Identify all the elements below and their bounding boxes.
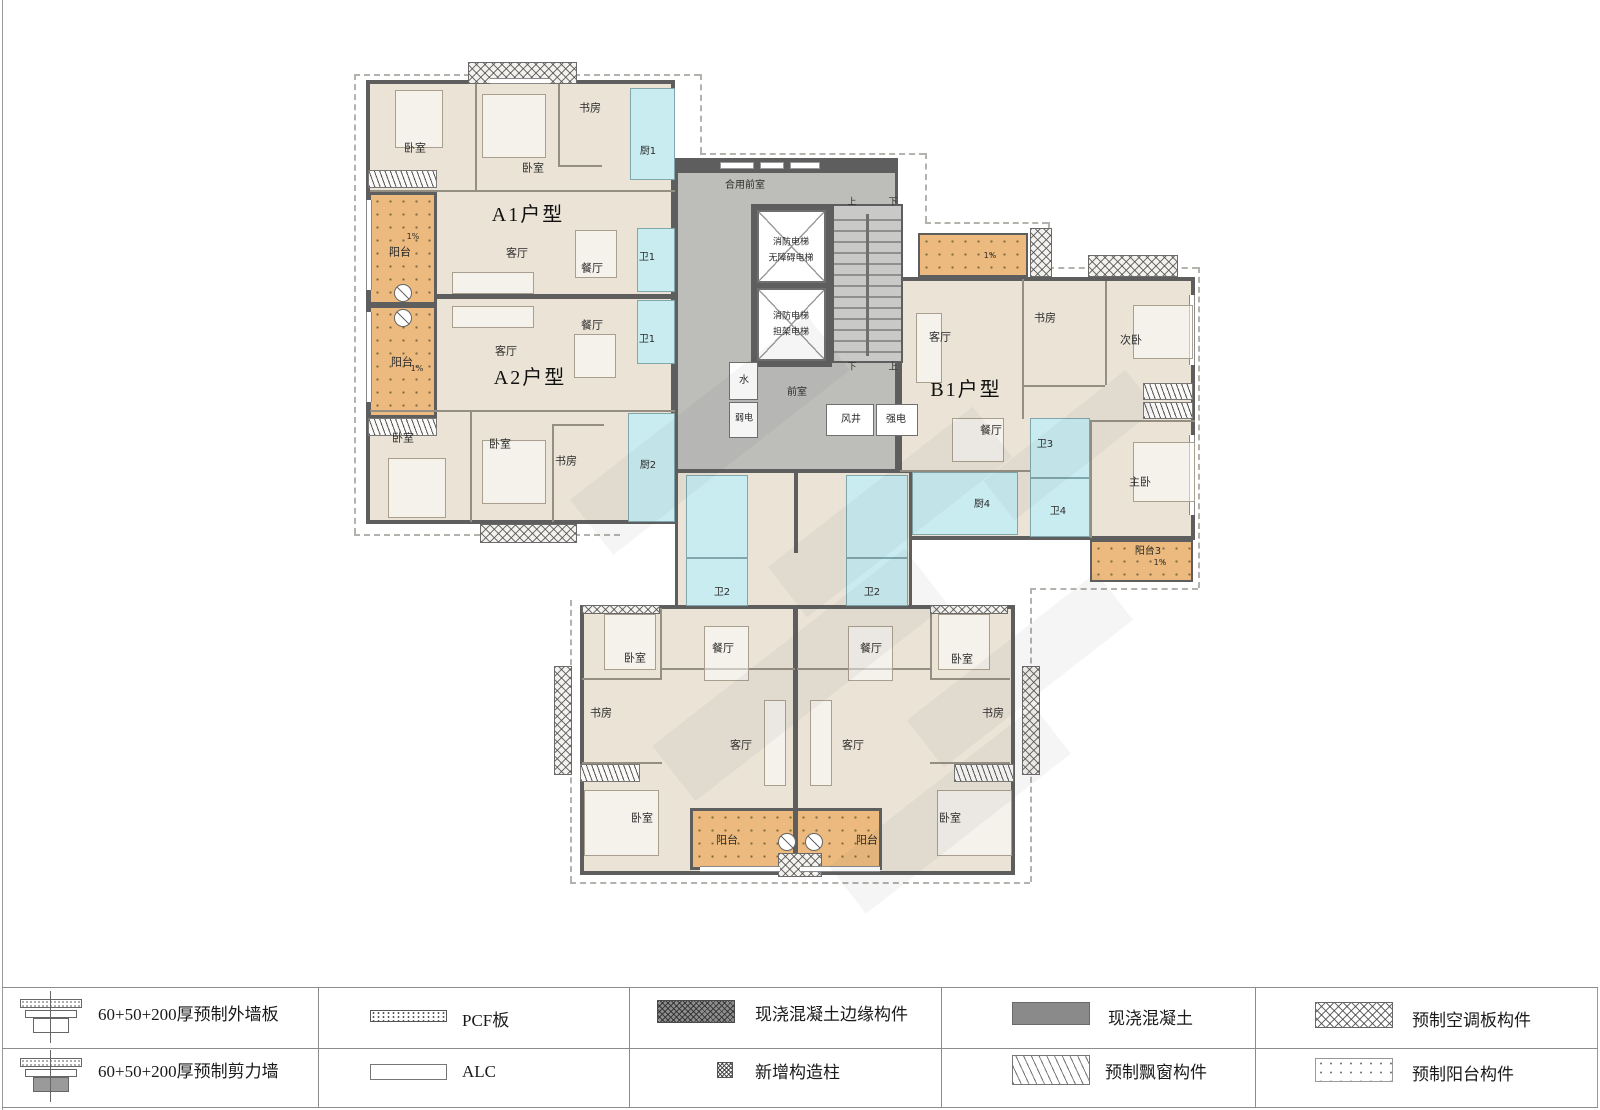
kitchen-1 <box>630 88 675 180</box>
room-label: 卧室 <box>489 439 511 450</box>
ac-panel-hatch <box>778 853 822 877</box>
room-label: 卧室 <box>939 813 961 824</box>
room-label: 阳台 <box>856 835 878 846</box>
room-label: 强电 <box>886 415 906 425</box>
dashed-boundary <box>925 153 927 222</box>
interior-wall <box>1024 385 1105 387</box>
legend-label: 新增构造柱 <box>755 1058 840 1083</box>
room-label: 担架电梯 <box>773 329 809 338</box>
room-label: 卧室 <box>392 433 414 444</box>
interior-wall <box>470 412 472 522</box>
room-label: 主卧 <box>1129 477 1151 488</box>
ac-panel-hatch <box>582 605 660 614</box>
room-label: 消防电梯 <box>773 313 809 322</box>
wall-vent <box>790 162 820 169</box>
room-label: 客厅 <box>730 740 752 751</box>
room-label: 1% <box>984 252 997 260</box>
sofa <box>916 313 942 383</box>
room-label: 客厅 <box>842 740 864 751</box>
room-label: 卫1 <box>639 253 655 263</box>
dashed-boundary <box>354 74 356 534</box>
legend-grid-line <box>1255 987 1256 1107</box>
bed <box>395 90 443 148</box>
legend-grid-line <box>629 987 630 1107</box>
legend-label: 现浇混凝土边缘构件 <box>755 1000 908 1025</box>
legend-grid-line <box>2 1107 1598 1108</box>
room-label: 卫2 <box>864 588 880 598</box>
room-label: 合用前室 <box>725 181 765 191</box>
room-label: 下 <box>847 364 856 373</box>
balcony-b1-top <box>918 233 1028 277</box>
room-label: 书房 <box>555 456 577 467</box>
bath-1-a2 <box>637 300 675 364</box>
legend-symbol-exterior-wall <box>20 991 82 1043</box>
legend-symbol-new-column <box>717 1062 733 1078</box>
room-label: 上 <box>847 199 856 208</box>
dashed-boundary <box>925 222 1048 224</box>
room-label: 客厅 <box>929 332 951 343</box>
legend-symbol-bay-window <box>1012 1055 1090 1085</box>
legend-label: ALC <box>462 1062 496 1082</box>
dashed-boundary <box>700 153 925 155</box>
ac-panel-hatch <box>1030 228 1052 277</box>
sofa <box>810 700 832 786</box>
dashed-boundary <box>700 74 702 153</box>
room-label: 卫2 <box>714 588 730 598</box>
room-label: 水 <box>739 376 749 386</box>
room-label: 阳台 <box>389 247 411 258</box>
room-label: 1% <box>411 365 424 373</box>
floorplan-canvas: A1户型A2户型B1户型卧室卧室书房厨1客厅餐厅卫1阳台餐厅卫1客厅阳台卧室卧室… <box>0 0 1600 1110</box>
interior-wall <box>552 424 604 426</box>
room-label: 厨1 <box>640 147 656 157</box>
ac-panel-hatch <box>480 524 577 543</box>
legend-symbol-cast-concrete <box>1012 1002 1090 1025</box>
room-label: 1% <box>1154 559 1167 567</box>
legend-grid-line <box>2 1048 1598 1049</box>
ac-panel-hatch <box>554 666 572 775</box>
window <box>366 312 372 402</box>
room-label: 餐厅 <box>712 643 734 654</box>
window <box>490 78 550 84</box>
room-label: 阳台 <box>716 835 738 846</box>
interior-wall <box>370 410 675 412</box>
interior-wall <box>1022 279 1024 419</box>
room-label: 厨4 <box>974 500 990 510</box>
room-label: 客厅 <box>495 346 517 357</box>
room-label: 餐厅 <box>980 425 1002 436</box>
legend-symbol-pcf <box>370 1010 447 1022</box>
unit-title: A1户型 <box>492 205 564 225</box>
bath-2-left <box>686 558 748 606</box>
legend-label: PCF板 <box>462 1006 509 1031</box>
sofa <box>452 272 534 294</box>
room-label: 无障碍电梯 <box>768 255 813 264</box>
legend-label: 现浇混凝土 <box>1108 1004 1193 1029</box>
legend-symbol-balcony-member <box>1315 1058 1393 1082</box>
washing-machine-icon <box>778 833 796 851</box>
room-label: 卫4 <box>1050 507 1066 517</box>
unit-title: B1户型 <box>930 380 1001 400</box>
interior-wall <box>475 84 477 190</box>
legend-symbol-cast-edge <box>657 1000 735 1023</box>
room-label: 1% <box>407 233 420 241</box>
legend-label: 预制空调板构件 <box>1412 1006 1531 1031</box>
room-label: 卫3 <box>1037 440 1053 450</box>
room-label: 卫1 <box>639 335 655 345</box>
bay-window-hatch <box>580 764 640 782</box>
interior-wall <box>1105 281 1107 385</box>
room-label: 卧室 <box>624 653 646 664</box>
interior-wall <box>558 165 602 167</box>
legend-label: 预制飘窗构件 <box>1105 1058 1207 1083</box>
ac-panel-hatch <box>1088 255 1178 277</box>
room-label: 前室 <box>787 388 807 398</box>
room-label: 阳台3 <box>1135 547 1161 557</box>
legend-grid-line <box>2 987 1598 988</box>
bed <box>388 458 446 518</box>
interior-wall <box>930 608 932 680</box>
room-label: 客厅 <box>506 248 528 259</box>
room-label: 上 <box>888 364 897 373</box>
bed <box>482 94 546 158</box>
dashed-boundary <box>1198 267 1200 588</box>
dining-table <box>574 334 616 378</box>
room-label: 卧室 <box>951 654 973 665</box>
room-label: 卧室 <box>404 143 426 154</box>
interior-wall <box>552 424 554 522</box>
interior-wall <box>582 678 662 680</box>
legend-symbol-shear-wall <box>20 1050 82 1102</box>
bed <box>1133 305 1193 359</box>
room-label: 消防电梯 <box>773 239 809 248</box>
core-top-wall <box>675 158 898 173</box>
room-label: 风井 <box>841 415 861 425</box>
washing-machine-icon <box>394 309 412 327</box>
legend-grid-line <box>941 987 942 1107</box>
room-label: 卧室 <box>522 163 544 174</box>
wardrobe-hatch <box>1143 383 1193 400</box>
wall-vent <box>760 162 784 169</box>
room-label: 厨2 <box>640 461 656 471</box>
washing-machine-icon <box>805 833 823 851</box>
dashed-boundary <box>1030 588 1198 590</box>
legend-label: 60+50+200厚预制剪力墙 <box>98 1057 279 1082</box>
unit-title: A2户型 <box>494 368 566 388</box>
interior-wall <box>558 84 560 166</box>
bay-window-hatch <box>368 170 437 188</box>
window <box>700 866 780 872</box>
window <box>366 200 372 290</box>
room-label: 弱电 <box>735 415 753 424</box>
room-label: 卧室 <box>631 813 653 824</box>
room-label: 书房 <box>982 708 1004 719</box>
wall-vent <box>720 162 754 169</box>
party-wall-a1-a2 <box>437 294 675 299</box>
legend-label: 预制阳台构件 <box>1412 1060 1514 1085</box>
washing-machine-icon <box>394 284 412 302</box>
room-label: 餐厅 <box>581 320 603 331</box>
bed <box>1133 442 1195 502</box>
interior-wall <box>370 190 675 192</box>
room-label: 书房 <box>590 708 612 719</box>
room-label: 次卧 <box>1120 335 1142 346</box>
legend-symbol-ac-panel <box>1315 1002 1393 1028</box>
room-label: 餐厅 <box>860 643 882 654</box>
room-label: 书房 <box>579 103 601 114</box>
legend-label: 60+50+200厚预制外墙板 <box>98 1000 279 1025</box>
frame-left-line <box>2 0 3 1110</box>
stair-center-rail <box>866 214 869 356</box>
room-label: 书房 <box>1034 313 1056 324</box>
sofa <box>452 306 534 328</box>
room-label: 餐厅 <box>581 263 603 274</box>
room-label: 下 <box>888 199 897 208</box>
party-wall-corridor <box>794 473 798 553</box>
legend-symbol-alc <box>370 1064 447 1080</box>
legend-grid-line <box>318 987 319 1107</box>
dashed-boundary <box>570 882 1030 884</box>
